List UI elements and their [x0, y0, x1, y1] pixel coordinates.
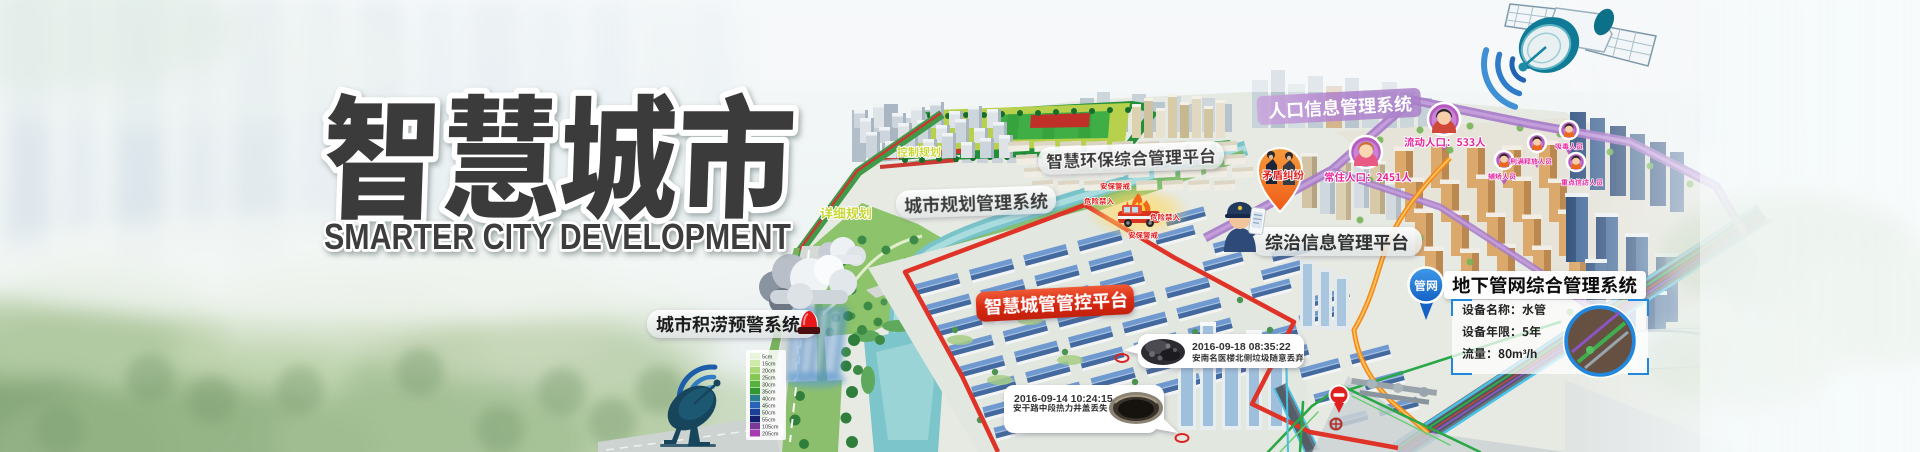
- svg-text:30cm: 30cm: [762, 383, 776, 389]
- svg-text:SMARTER CITY DEVELOPMENT: SMARTER CITY DEVELOPMENT: [324, 216, 791, 257]
- svg-text:45cm: 45cm: [762, 404, 776, 410]
- svg-text:2016-09-14 10:24:15: 2016-09-14 10:24:15: [1014, 393, 1113, 405]
- svg-text:40cm: 40cm: [762, 397, 776, 403]
- svg-text:35cm: 35cm: [762, 390, 776, 396]
- svg-text:m³/h: m³/h: [1512, 347, 1537, 361]
- svg-text:55cm: 55cm: [762, 418, 776, 424]
- svg-text:15cm: 15cm: [762, 362, 776, 368]
- svg-text:205cm: 205cm: [762, 432, 779, 438]
- svg-text:50cm: 50cm: [762, 411, 776, 417]
- svg-text:2016-09-18 08:35:22: 2016-09-18 08:35:22: [1192, 341, 1291, 353]
- svg-text:105cm: 105cm: [762, 425, 779, 431]
- svg-text:5cm: 5cm: [762, 355, 773, 361]
- svg-text:20cm: 20cm: [762, 369, 776, 375]
- svg-text:25cm: 25cm: [762, 376, 776, 382]
